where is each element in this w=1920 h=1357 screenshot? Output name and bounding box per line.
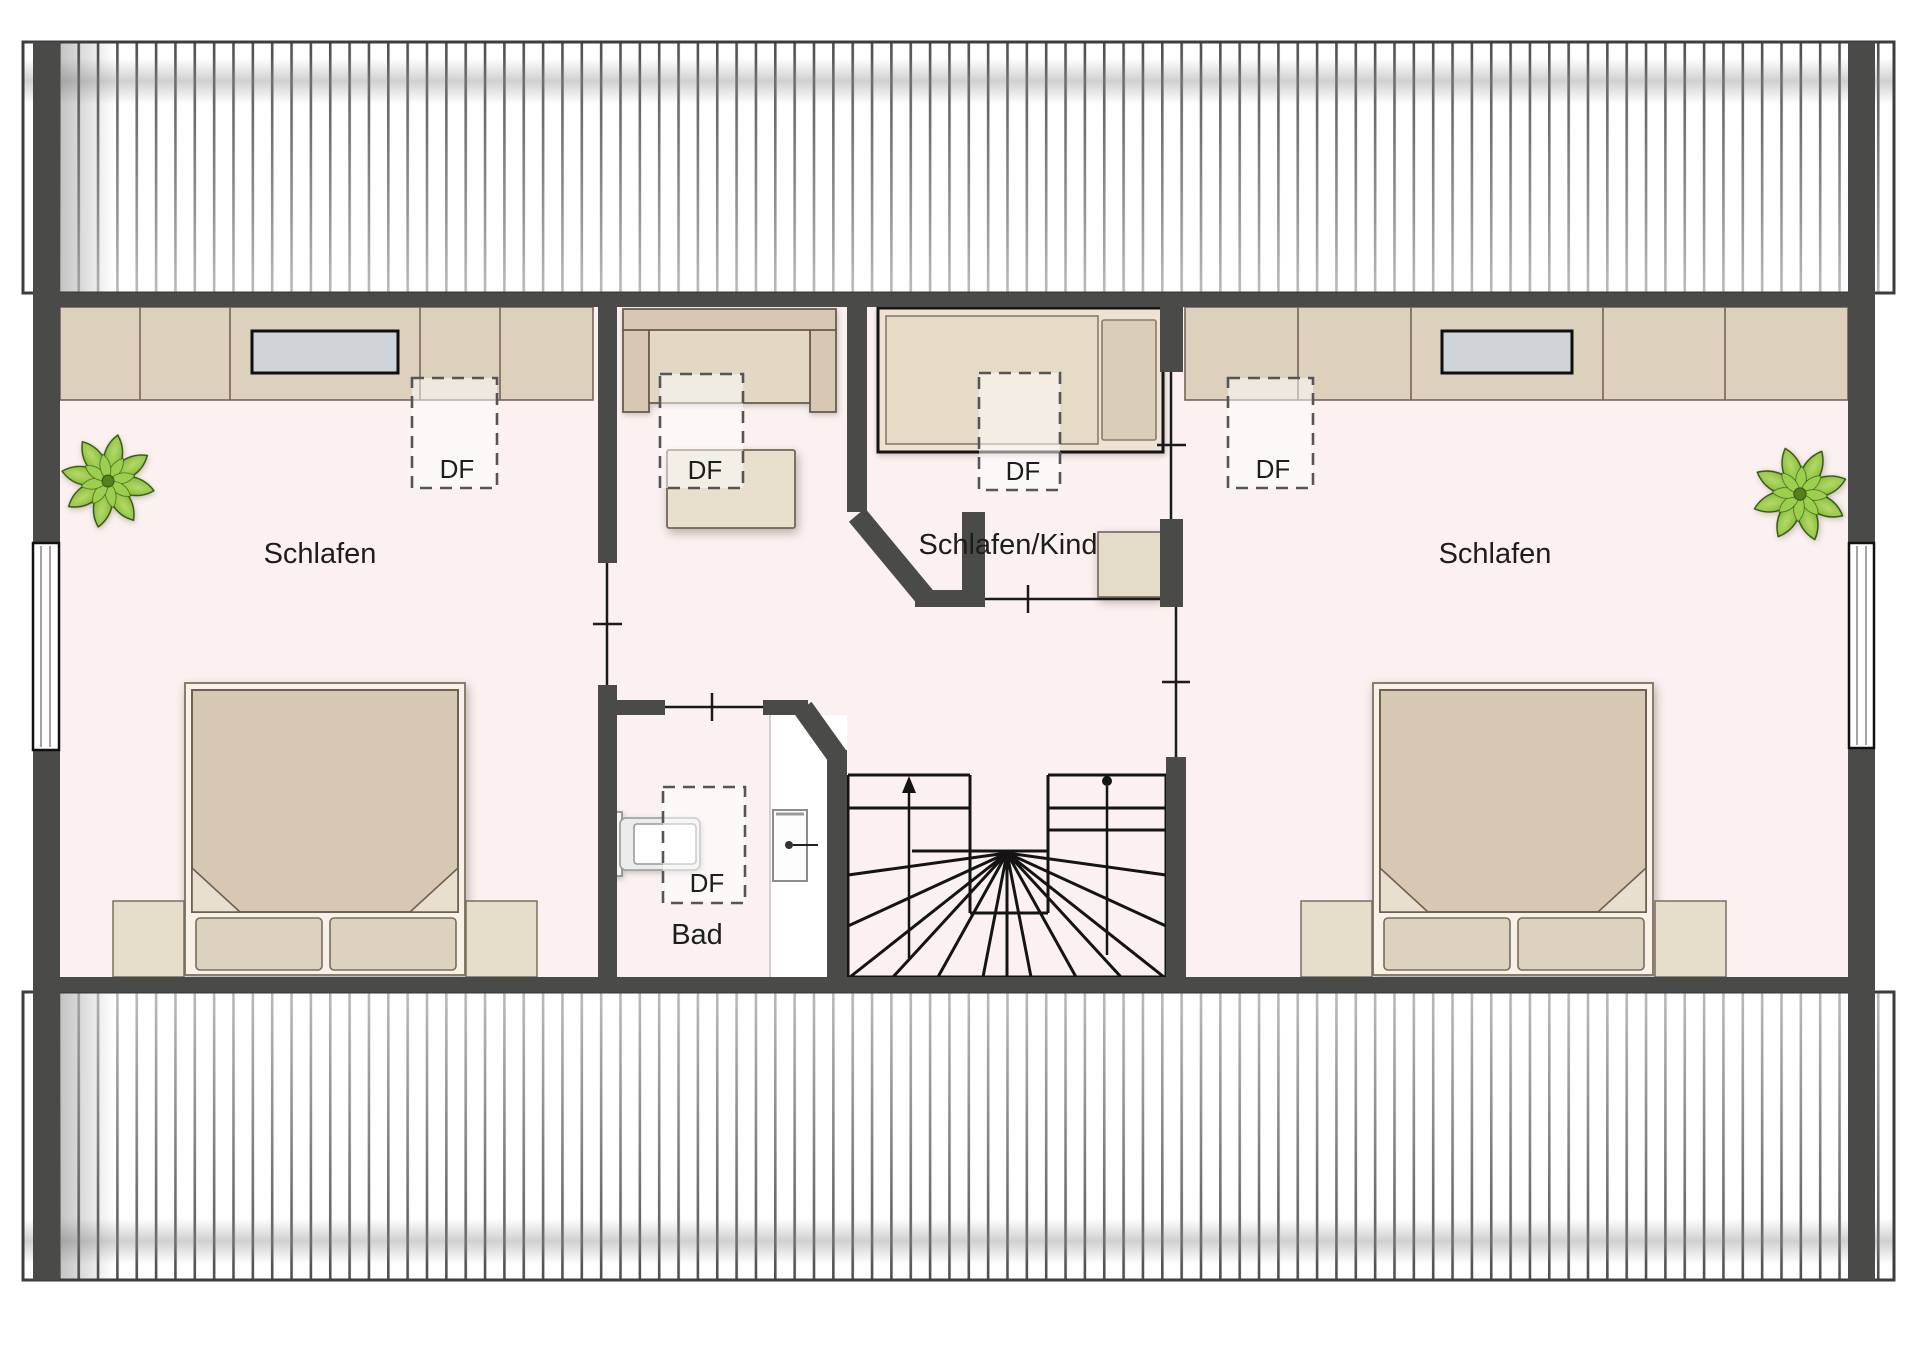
door-knob [785,841,793,849]
window-right [1849,543,1874,748]
roof-area-top [23,42,1894,293]
df-label-hallway: DF [688,455,723,485]
blanket [192,690,458,912]
room-label-bedroom-right: Schlafen [1439,538,1552,570]
df-label-child-bedroom: DF [1006,456,1041,486]
wall-hall-childroom [847,307,867,512]
wall-childroom-right-upper [1160,293,1183,372]
wall-bottom [33,977,1875,992]
wall-bedroomleft-hall-upper [598,307,617,563]
bed-right [1373,683,1653,975]
nightstand-child [1098,532,1161,597]
pillow [1384,918,1510,970]
wall-bedroomright-stairs [1166,757,1186,977]
nightstand [466,901,537,977]
pillow [196,918,322,970]
nightstand [113,901,184,977]
nightstand [1301,901,1372,977]
df-label-bathroom: DF [690,868,725,898]
blanket [1380,690,1646,912]
roof-area-bottom [23,992,1894,1280]
wall-bedroomleft-bath [598,685,617,977]
df-label-bedroom-right: DF [1256,454,1291,484]
wall-top [33,293,1875,307]
room-label-bathroom: Bad [671,919,723,951]
wardrobe-left [60,307,593,400]
df-label-bedroom-left: DF [440,454,475,484]
pillow [1518,918,1644,970]
mirror [1442,331,1572,373]
window-left [33,543,59,750]
mirror [252,331,398,373]
nightstand [1655,901,1726,977]
pillow [330,918,456,970]
wall-bath-top-left [598,700,665,715]
wall-childroom-right-lower [1160,519,1183,607]
room-label-child-bedroom: Schlafen/Kind [919,529,1098,561]
pillow [1102,320,1156,440]
floor-plan-drawing: Schlafen Schlafen/Kind Bad Schlafen DF D… [0,0,1920,1357]
wall-bath-stairs [827,750,847,977]
walking-line-dot [1102,776,1112,786]
floor-plan-page: Schlafen Schlafen/Kind Bad Schlafen DF D… [0,0,1920,1357]
bed-left [185,683,465,975]
room-label-bedroom-left: Schlafen [264,538,377,570]
